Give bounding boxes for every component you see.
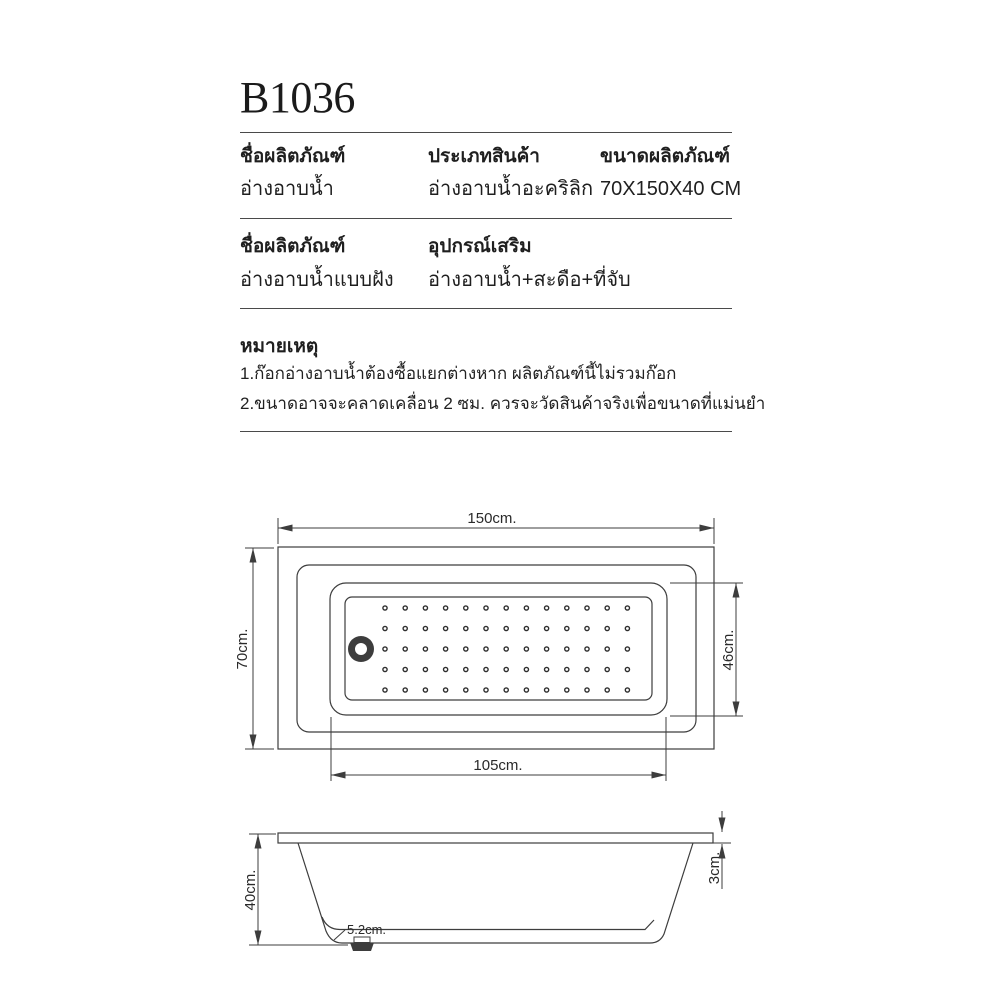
- anti-slip-dot: [524, 688, 528, 692]
- dim-label-105cm: 105cm.: [473, 757, 522, 774]
- anti-slip-dot: [524, 606, 528, 610]
- anti-slip-dot: [423, 606, 427, 610]
- anti-slip-dot: [625, 606, 629, 610]
- anti-slip-dot: [605, 626, 609, 630]
- anti-slip-dot: [484, 688, 488, 692]
- anti-slip-dot: [625, 667, 629, 671]
- drain-neck: [354, 937, 370, 943]
- anti-slip-dot: [444, 626, 448, 630]
- dim-label-40cm: 40cm.: [242, 870, 259, 911]
- anti-slip-dot: [444, 688, 448, 692]
- spec1-value-product-name: อ่างอาบน้ำ: [240, 177, 334, 201]
- dim-label-150cm: 150cm.: [467, 510, 516, 527]
- anti-slip-dot: [423, 626, 427, 630]
- anti-slip-dot: [444, 647, 448, 651]
- anti-slip-dot: [444, 667, 448, 671]
- dim-label-46cm: 46cm.: [720, 630, 737, 671]
- anti-slip-dot: [383, 626, 387, 630]
- technical-drawing: 150cm. 70cm. 105cm. 46cm.: [0, 480, 1000, 1000]
- dim-label-70cm: 70cm.: [234, 629, 251, 670]
- anti-slip-dot: [605, 688, 609, 692]
- anti-slip-dot: [383, 688, 387, 692]
- anti-slip-dot: [605, 606, 609, 610]
- tub-outer-edge: [278, 547, 714, 749]
- anti-slip-dot: [403, 606, 407, 610]
- notes-heading: หมายเหตุ: [240, 331, 318, 361]
- anti-slip-dot: [545, 688, 549, 692]
- anti-slip-dot: [565, 606, 569, 610]
- dim-overall-depth: 70cm.: [234, 548, 274, 749]
- anti-slip-dot: [383, 647, 387, 651]
- anti-slip-dot: [484, 647, 488, 651]
- drain-cap: [350, 943, 374, 952]
- anti-slip-dot: [423, 688, 427, 692]
- anti-slip-dot: [545, 647, 549, 651]
- anti-slip-dot: [524, 626, 528, 630]
- divider: [240, 308, 732, 309]
- note-item-1: 1.ก๊อกอ่างอาบน้ำต้องซื้อแยกต่างหาก ผลิตภ…: [240, 364, 676, 384]
- divider: [240, 132, 732, 133]
- anti-slip-dot: [545, 626, 549, 630]
- spec1-header-product-type: ประเภทสินค้า: [428, 146, 540, 169]
- dim-overall-width: 150cm.: [278, 510, 714, 544]
- rim-profile: [278, 833, 713, 843]
- divider: [240, 218, 732, 219]
- anti-slip-dot: [585, 667, 589, 671]
- anti-slip-dot: [504, 606, 508, 610]
- dim-label-5-2cm: 5.2cm.: [347, 922, 386, 937]
- basin-top-edge: [330, 583, 667, 715]
- anti-slip-dots: [383, 606, 630, 692]
- anti-slip-dot: [545, 606, 549, 610]
- anti-slip-dot: [585, 606, 589, 610]
- anti-slip-dot: [585, 626, 589, 630]
- anti-slip-dot: [524, 667, 528, 671]
- anti-slip-dot: [383, 606, 387, 610]
- spec2-header-product-name: ชื่อผลิตภัณฑ์: [240, 236, 345, 259]
- drain-hole: [355, 643, 367, 655]
- spec-sheet-page: B1036 ชื่อผลิตภัณฑ์ ประเภทสินค้า ขนาดผลิ…: [0, 0, 1000, 1000]
- spec1-value-product-type: อ่างอาบน้ำอะคริลิก: [428, 177, 593, 201]
- anti-slip-dot: [403, 626, 407, 630]
- dim-basin-depth: 46cm.: [670, 583, 743, 716]
- tub-top-view: 150cm. 70cm. 105cm. 46cm.: [234, 510, 743, 781]
- anti-slip-dot: [464, 626, 468, 630]
- dim-rim-thickness: 3cm.: [706, 811, 731, 889]
- spec1-value-product-size: 70X150X40 CM: [600, 177, 741, 201]
- note-item-2: 2.ขนาดอาจจะคลาดเคลื่อน 2 ซม. ควรจะวัดสิน…: [240, 394, 765, 414]
- anti-slip-dot: [565, 626, 569, 630]
- spec2-value-product-name: อ่างอาบน้ำแบบฝัง: [240, 268, 394, 292]
- anti-slip-dot: [524, 647, 528, 651]
- drain-leader-line: [334, 930, 345, 940]
- anti-slip-dot: [464, 606, 468, 610]
- anti-slip-dot: [484, 606, 488, 610]
- spec1-header-product-size: ขนาดผลิตภัณฑ์: [600, 146, 730, 169]
- anti-slip-dot: [484, 626, 488, 630]
- spec2-header-accessories: อุปกรณ์เสริม: [428, 236, 532, 259]
- anti-slip-dot: [403, 647, 407, 651]
- anti-slip-dot: [565, 688, 569, 692]
- anti-slip-dot: [565, 667, 569, 671]
- divider: [240, 431, 732, 432]
- spec1-header-product-name: ชื่อผลิตภัณฑ์: [240, 146, 345, 169]
- spec2-value-accessories: อ่างอาบน้ำ+สะดือ+ที่จับ: [428, 268, 631, 292]
- tub-side-view: 5.2cm. 40cm. 3cm.: [242, 811, 731, 951]
- anti-slip-dot: [383, 667, 387, 671]
- anti-slip-dot: [585, 647, 589, 651]
- anti-slip-dot: [504, 647, 508, 651]
- anti-slip-dot: [504, 688, 508, 692]
- anti-slip-dot: [605, 667, 609, 671]
- drain-side-view: [350, 937, 374, 951]
- anti-slip-dot: [504, 626, 508, 630]
- anti-slip-dot: [403, 688, 407, 692]
- anti-slip-dot: [625, 647, 629, 651]
- anti-slip-dot: [464, 688, 468, 692]
- anti-slip-dot: [504, 667, 508, 671]
- anti-slip-dot: [423, 647, 427, 651]
- dim-label-3cm: 3cm.: [706, 852, 723, 885]
- anti-slip-dot: [625, 626, 629, 630]
- anti-slip-dot: [444, 606, 448, 610]
- anti-slip-dot: [464, 667, 468, 671]
- drain-top-view: [348, 636, 374, 662]
- anti-slip-dot: [484, 667, 488, 671]
- anti-slip-dot: [625, 688, 629, 692]
- anti-slip-dot: [403, 667, 407, 671]
- anti-slip-dot: [565, 647, 569, 651]
- anti-slip-dot: [585, 688, 589, 692]
- product-code-title: B1036: [240, 76, 355, 120]
- anti-slip-dot: [605, 647, 609, 651]
- anti-slip-dot: [423, 667, 427, 671]
- anti-slip-dot: [464, 647, 468, 651]
- anti-slip-dot: [545, 667, 549, 671]
